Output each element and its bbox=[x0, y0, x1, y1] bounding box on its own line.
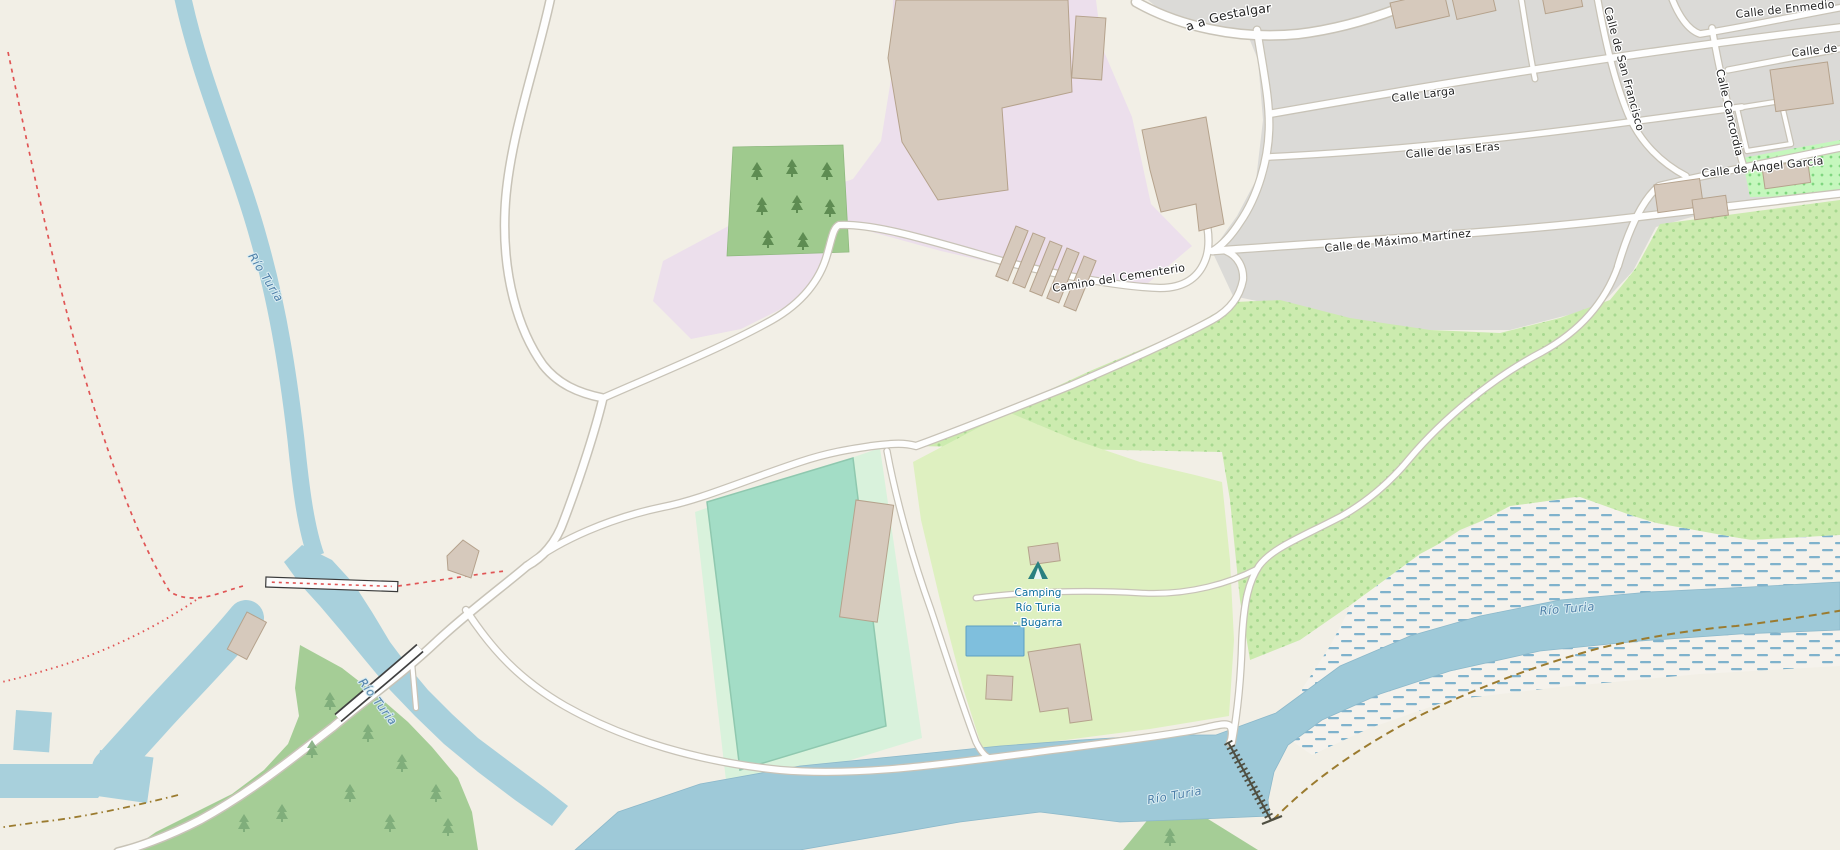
campsite-label: Camping Río Turia - Bugarra bbox=[1014, 587, 1063, 629]
svg-text:- Bugarra: - Bugarra bbox=[1014, 617, 1063, 629]
svg-text:Camping: Camping bbox=[1015, 587, 1062, 599]
svg-text:Río Turia: Río Turia bbox=[1015, 602, 1060, 614]
map-canvas[interactable]: a a Gestalgar Calle Larga Calle de las E… bbox=[0, 0, 1840, 850]
building bbox=[1692, 195, 1728, 220]
building bbox=[1770, 62, 1833, 112]
swimming-pool bbox=[966, 626, 1024, 656]
building bbox=[986, 675, 1013, 700]
building bbox=[1028, 543, 1060, 565]
building bbox=[1072, 16, 1106, 80]
